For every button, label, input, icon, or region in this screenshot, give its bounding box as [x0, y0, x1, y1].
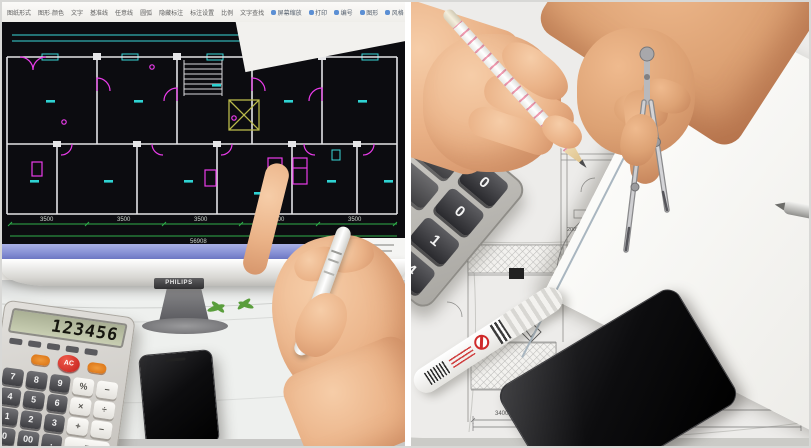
marker-red-text	[448, 346, 475, 369]
menu-tool-label: 编号	[341, 8, 353, 17]
calculator-key[interactable]: ×	[69, 397, 92, 417]
calculator: 123456 AC 7 8 9 % − 4 5 6 × ÷ 1 2 3	[2, 300, 136, 446]
calculator-key[interactable]: 1	[2, 407, 19, 427]
calculator-key[interactable]: 3	[43, 413, 66, 433]
calculator-key[interactable]: ÷	[93, 400, 116, 420]
calculator-key[interactable]: 00	[17, 430, 40, 446]
menu-item[interactable]: 基准线	[90, 8, 108, 17]
calculator-key[interactable]: 2	[19, 410, 42, 430]
menu-item[interactable]: 隐藏标注	[159, 8, 183, 17]
menu-item[interactable]: 图形·颜色	[38, 8, 64, 17]
cad-screen: 3500 3500 3500 3500 3500 56908	[2, 22, 405, 244]
menu-item[interactable]: 任意线	[115, 8, 133, 17]
dim-label: 3500	[348, 217, 362, 223]
menu-tool-label: 风格	[392, 8, 404, 17]
barcode	[424, 360, 452, 385]
menu-tool-number[interactable]: 编号	[334, 8, 353, 17]
calculator-key[interactable]: 6	[46, 393, 69, 413]
menu-tool-print[interactable]: 打印	[309, 8, 328, 17]
calculator-key[interactable]: 5	[22, 390, 45, 410]
menu-item[interactable]: 图纸形式	[7, 8, 31, 17]
calculator-key-orange[interactable]	[87, 361, 107, 374]
dim-label: 3500	[117, 217, 131, 223]
zoom-icon	[271, 10, 276, 15]
right-photo-blueprint-desk: 3400 2000 500 200	[411, 2, 809, 446]
left-photo-cad-monitor: 图纸形式 图形·颜色 文字 基准线 任意线 圆弧 隐藏标注 标注设置 比例 文字…	[2, 2, 405, 446]
menu-item[interactable]: 文字查找	[240, 8, 264, 17]
print-icon	[309, 10, 314, 15]
shape-icon	[360, 10, 365, 15]
calculator-key[interactable]: 0	[2, 426, 16, 446]
monitor-stand-base	[142, 318, 228, 334]
calculator-key[interactable]: −	[96, 380, 119, 400]
photo-collage: 图纸形式 图形·颜色 文字 基准线 任意线 圆弧 隐藏标注 标注设置 比例 文字…	[0, 0, 811, 448]
menu-tool-label: 屏幕缩放	[278, 8, 302, 17]
style-icon	[385, 10, 390, 15]
menu-tool-label: 打印	[315, 8, 327, 17]
calculator-key-orange[interactable]	[30, 353, 50, 366]
menu-item[interactable]: 圆弧	[140, 8, 152, 17]
menu-tool-shape[interactable]: 图形	[360, 8, 379, 17]
cad-menubar: 图纸形式 图形·颜色 文字 基准线 任意线 圆弧 隐藏标注 标注设置 比例 文字…	[2, 2, 405, 22]
calculator-key[interactable]: 8	[25, 370, 48, 390]
calculator-key[interactable]: 7	[2, 367, 24, 387]
menu-item[interactable]: 文字	[71, 8, 83, 17]
calculator-key[interactable]: 4	[2, 387, 21, 407]
menu-tool-style[interactable]: 风格	[385, 8, 404, 17]
phone-speaker	[165, 357, 185, 362]
calculator-key[interactable]: +	[66, 417, 89, 437]
philips-logo: PHILIPS	[154, 278, 204, 289]
calculator-ac-key[interactable]: AC	[57, 354, 81, 374]
dim-label: 3500	[194, 217, 208, 223]
menu-item[interactable]: 比例	[221, 8, 233, 17]
calculator-key[interactable]: .	[40, 433, 63, 446]
calculator-key[interactable]: 9	[48, 374, 71, 394]
no-entry-icon	[471, 332, 492, 353]
calculator-key[interactable]: −	[90, 420, 113, 440]
menu-tool-zoom[interactable]: 屏幕缩放	[271, 8, 302, 17]
dim-label: 3500	[40, 217, 54, 223]
cad-floor-plan: 3500 3500 3500 3500 3500 56908	[2, 22, 405, 244]
calculator-key[interactable]: %	[72, 377, 95, 397]
smartphone	[138, 349, 220, 446]
menu-item[interactable]: 标注设置	[190, 8, 214, 17]
menu-tool-label: 图形	[366, 8, 378, 17]
calculator-keypad: 7 8 9 % − 4 5 6 × ÷ 1 2 3 + − 0 00 . =	[2, 367, 119, 446]
number-icon	[334, 10, 339, 15]
